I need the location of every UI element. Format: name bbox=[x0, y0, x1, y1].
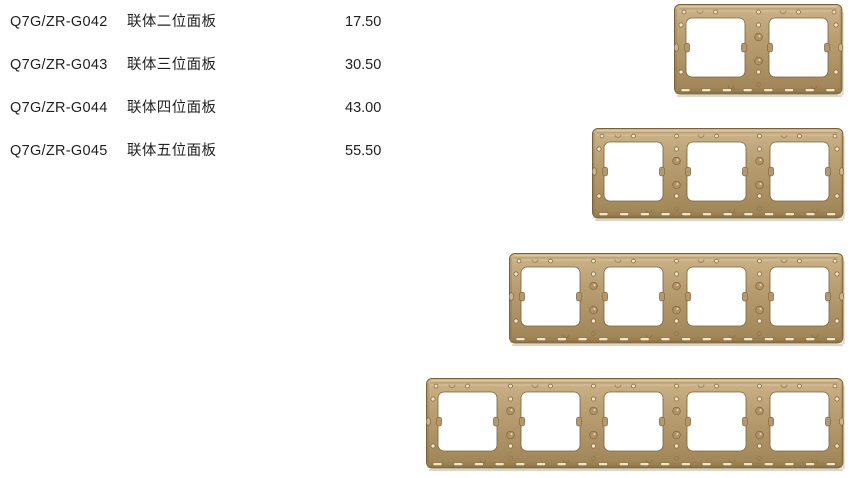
product-code: Q7G/ZR-G044 bbox=[10, 99, 108, 118]
panel-image-5gang bbox=[426, 378, 845, 472]
product-price: 30.50 bbox=[345, 56, 381, 75]
panel-image-3gang bbox=[592, 128, 845, 222]
product-name: 联体五位面板 bbox=[127, 142, 216, 161]
panel-image-4gang bbox=[509, 253, 845, 347]
catalog-page: Q7G/ZR-G042 联体二位面板 17.50 Q7G/ZR-G043 联体三… bbox=[0, 0, 850, 478]
product-code: Q7G/ZR-G043 bbox=[10, 56, 108, 75]
product-name: 联体二位面板 bbox=[127, 13, 216, 32]
product-row: Q7G/ZR-G044 联体四位面板 43.00 bbox=[0, 99, 430, 118]
product-code: Q7G/ZR-G042 bbox=[10, 13, 108, 32]
product-price: 43.00 bbox=[345, 99, 381, 118]
product-price: 55.50 bbox=[345, 142, 381, 161]
product-row: Q7G/ZR-G045 联体五位面板 55.50 bbox=[0, 142, 430, 161]
product-row: Q7G/ZR-G042 联体二位面板 17.50 bbox=[0, 13, 430, 32]
product-name: 联体四位面板 bbox=[127, 99, 216, 118]
panel-image-2gang bbox=[674, 4, 844, 98]
product-row: Q7G/ZR-G043 联体三位面板 30.50 bbox=[0, 56, 430, 75]
product-code: Q7G/ZR-G045 bbox=[10, 142, 108, 161]
product-list: Q7G/ZR-G042 联体二位面板 17.50 Q7G/ZR-G043 联体三… bbox=[0, 0, 430, 200]
product-name: 联体三位面板 bbox=[127, 56, 216, 75]
product-price: 17.50 bbox=[345, 13, 381, 32]
